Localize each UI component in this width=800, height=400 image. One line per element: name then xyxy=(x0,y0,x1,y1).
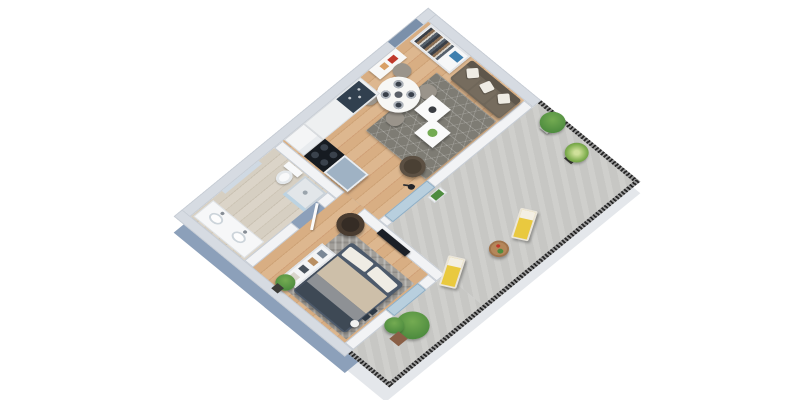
shelf-item xyxy=(316,249,327,258)
blue-storage-box xyxy=(449,51,464,63)
small-table-plant xyxy=(496,248,504,255)
throw-pillow xyxy=(497,93,510,104)
red-decor-item xyxy=(387,55,398,64)
shelf-item xyxy=(298,265,309,274)
shower-drain xyxy=(302,190,309,196)
utensil xyxy=(357,88,361,91)
throw-pillow xyxy=(466,68,479,79)
burner xyxy=(309,150,320,159)
orange-decor-item xyxy=(379,62,389,70)
centerpiece-bowl xyxy=(393,90,404,99)
plate xyxy=(379,89,393,101)
lounger-backrest xyxy=(447,257,463,268)
plate xyxy=(391,78,405,90)
plate xyxy=(404,89,418,101)
apartment-3d-plan xyxy=(174,8,641,391)
plate xyxy=(391,99,405,111)
burner xyxy=(328,150,339,159)
shelf-item xyxy=(307,257,318,266)
utensil xyxy=(358,95,362,98)
decor-bowl xyxy=(427,105,438,114)
floor-plan-scene xyxy=(0,0,800,400)
utensil xyxy=(348,96,352,99)
table-plant xyxy=(425,127,439,139)
lounger-backrest xyxy=(519,210,535,221)
burner xyxy=(319,158,330,167)
burner xyxy=(319,143,330,152)
